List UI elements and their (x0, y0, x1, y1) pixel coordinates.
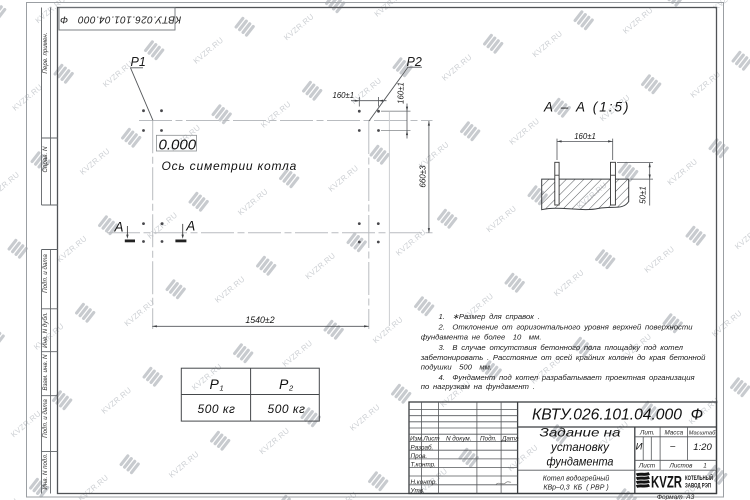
svg-text:KVZR.RU: KVZR.RU (9, 409, 43, 439)
svg-text:Задание на: Задание на (540, 426, 621, 440)
svg-text:фундамента: фундамента (547, 455, 614, 469)
svg-text:P1: P1 (131, 55, 146, 69)
svg-text:Подп.: Подп. (480, 435, 497, 443)
svg-text:KVZR.RU: KVZR.RU (666, 157, 700, 187)
svg-text:KVZR.RU: KVZR.RU (192, 35, 226, 65)
svg-text:ЗАВОД РЭП: ЗАВОД РЭП (685, 484, 711, 490)
svg-text:Лист: Лист (638, 463, 655, 470)
svg-text:KVZR.RU: KVZR.RU (100, 385, 134, 415)
svg-text:Перв. примен.: Перв. примен. (42, 32, 49, 73)
svg-text:KVZR.RU: KVZR.RU (643, 244, 677, 274)
svg-text:KVZR.RU: KVZR.RU (394, 227, 428, 257)
svg-text:KVZR.RU: KVZR.RU (0, 496, 20, 500)
svg-text:Н.контр.: Н.контр. (411, 479, 438, 486)
svg-text:А: А (185, 219, 195, 234)
svg-text:KVZR.RU: KVZR.RU (78, 146, 112, 176)
svg-text:А – А (1:5): А – А (1:5) (543, 100, 631, 115)
svg-text:500 кг: 500 кг (198, 402, 236, 416)
svg-text:1: 1 (703, 463, 707, 470)
svg-text:Взам. инв. N: Взам. инв. N (42, 354, 49, 391)
svg-text:забетонировать . Расстояние от: забетонировать . Расстояние от осей край… (420, 353, 706, 362)
svg-text:3. В случае отсутствия бетонн: 3. В случае отсутствия бетонного пола пл… (439, 343, 684, 352)
svg-text:KVZR.RU: KVZR.RU (325, 490, 359, 500)
svg-text:Пров.: Пров. (411, 453, 428, 460)
svg-text:KVZR.RU: KVZR.RU (552, 268, 586, 298)
svg-text:KVZR.RU: KVZR.RU (508, 116, 542, 146)
svg-text:500 кг: 500 кг (268, 402, 306, 416)
svg-text:P: P (210, 376, 220, 392)
svg-text:Ось симетрии котла: Ось симетрии котла (162, 159, 298, 173)
svg-text:КВр–0,3 КБ ( РВР ): КВр–0,3 КБ ( РВР ) (543, 485, 608, 492)
svg-text:А: А (114, 219, 124, 234)
svg-text:фундамента не более 10 мм.: фундамента не более 10 мм. (421, 333, 542, 342)
svg-text:КВТУ.026.101.04.000 Ф: КВТУ.026.101.04.000 Ф (532, 407, 703, 424)
svg-text:1540±2: 1540±2 (245, 315, 274, 325)
svg-text:KVZR.RU: KVZR.RU (304, 251, 338, 281)
svg-text:KVZR.RU: KVZR.RU (440, 52, 474, 82)
svg-text:подушки 500 мм.: подушки 500 мм. (421, 362, 492, 371)
svg-text:Формат А3: Формат А3 (657, 494, 695, 500)
svg-text:КОТЕЛЬНЫЙ: КОТЕЛЬНЫЙ (685, 474, 713, 482)
svg-text:Утв.: Утв. (410, 488, 425, 495)
svg-text:KVZR.RU: KVZR.RU (281, 338, 315, 368)
svg-text:N докум.: N докум. (446, 435, 471, 443)
svg-text:установку: установку (550, 440, 610, 454)
svg-text:1: 1 (220, 384, 224, 393)
svg-text:0.000: 0.000 (159, 136, 197, 153)
svg-text:1:20: 1:20 (693, 442, 712, 453)
svg-text:И: И (636, 442, 643, 453)
svg-text:KVZR.RU: KVZR.RU (146, 210, 180, 240)
svg-text:KVZR.RU: KVZR.RU (733, 221, 750, 251)
svg-text:КВТУ.026.101.04.000 Ф: КВТУ.026.101.04.000 Ф (60, 13, 181, 24)
svg-text:660±3: 660±3 (419, 165, 428, 188)
svg-text:KVZR.RU: KVZR.RU (124, 0, 158, 2)
svg-text:KVZR.RU: KVZR.RU (506, 443, 540, 473)
svg-text:KVZR.RU: KVZR.RU (348, 402, 382, 432)
svg-text:KVZR.RU: KVZR.RU (259, 99, 293, 129)
svg-text:Лит.: Лит. (639, 429, 655, 436)
svg-text:KVZR.RU: KVZR.RU (213, 274, 247, 304)
svg-text:KVZR.RU: KVZR.RU (77, 473, 111, 500)
svg-text:KVZR.RU: KVZR.RU (123, 298, 157, 328)
svg-text:KVZR.RU: KVZR.RU (11, 82, 45, 112)
svg-text:Изм.Лист: Изм.Лист (410, 436, 440, 443)
svg-text:Дата: Дата (501, 436, 519, 443)
svg-text:–: – (669, 441, 676, 451)
svg-text:160±1: 160±1 (333, 91, 355, 100)
svg-text:KVZR.RU: KVZR.RU (371, 315, 405, 345)
svg-text:4. Фундамент под котел разраб: 4. Фундамент под котел разрабатывает про… (439, 373, 695, 382)
svg-text:Котел водогрейный: Котел водогрейный (543, 475, 610, 483)
svg-text:KVZR.RU: KVZR.RU (258, 426, 292, 456)
svg-text:Подп. и дата: Подп. и дата (42, 399, 49, 438)
svg-text:Разраб.: Разраб. (411, 443, 434, 451)
svg-text:2. Отклонение от горизонтальн: 2. Отклонение от горизонтального уровня … (438, 322, 694, 331)
svg-text:Листов: Листов (669, 463, 694, 470)
svg-text:Инв. N дубл.: Инв. N дубл. (42, 312, 49, 348)
svg-text:KVZR: KVZR (651, 473, 682, 492)
svg-text:KVZR.RU: KVZR.RU (167, 449, 201, 479)
svg-text:2: 2 (288, 384, 294, 393)
svg-text:1. ∗Размер для справок .: 1. ∗Размер для справок . (439, 312, 540, 321)
svg-text:KVZR.RU: KVZR.RU (282, 12, 316, 42)
svg-text:Подп. и дата: Подп. и дата (42, 254, 49, 293)
svg-text:P: P (279, 376, 289, 392)
svg-text:KVZR.RU: KVZR.RU (531, 29, 565, 59)
svg-text:KVZR.RU: KVZR.RU (55, 234, 89, 264)
svg-text:KVZR.RU: KVZR.RU (621, 5, 655, 35)
svg-text:Т.контр.: Т.контр. (411, 462, 436, 469)
svg-text:KVZR.RU: KVZR.RU (32, 321, 66, 351)
svg-text:Справ. N: Справ. N (42, 146, 49, 172)
svg-text:Инв. N подл.: Инв. N подл. (42, 453, 49, 489)
svg-text:50±1: 50±1 (639, 186, 648, 204)
svg-text:Масса: Масса (664, 429, 683, 436)
svg-text:Масштаб: Масштаб (689, 430, 716, 436)
svg-text:KVZR.RU: KVZR.RU (485, 204, 519, 234)
svg-text:KVZR.RU: KVZR.RU (0, 170, 21, 200)
svg-text:по нагрузкам на фундамент .: по нагрузкам на фундамент . (421, 382, 535, 391)
svg-text:160±1: 160±1 (397, 82, 406, 104)
svg-text:KVZR.RU: KVZR.RU (327, 163, 361, 193)
svg-text:KVZR.RU: KVZR.RU (689, 69, 723, 99)
svg-text:KVZR.RU: KVZR.RU (236, 187, 270, 217)
svg-text:KVZR.RU: KVZR.RU (710, 308, 744, 338)
svg-text:160±1: 160±1 (574, 132, 596, 141)
